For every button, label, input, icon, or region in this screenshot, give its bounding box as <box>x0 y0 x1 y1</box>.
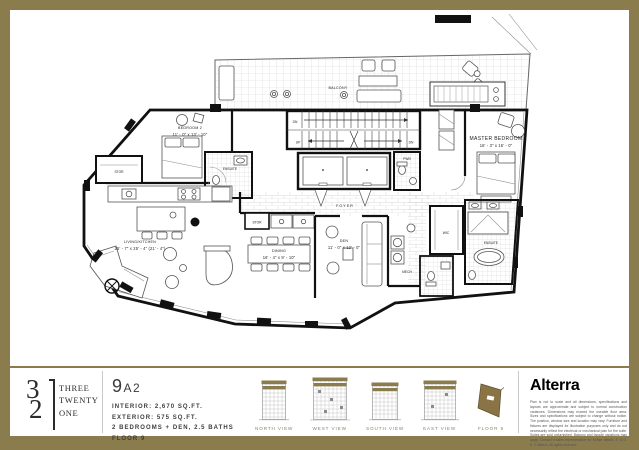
east-elevation-drawing <box>421 377 459 423</box>
legal-disclaimer: Plan is not to scale and all dimensions,… <box>530 400 627 448</box>
logo-word-one: ONE <box>59 407 98 419</box>
den-chair <box>327 262 339 274</box>
floorplate-icon: FLOOR 9 <box>475 377 507 431</box>
elevation-east: EAST VIEW <box>421 377 459 431</box>
stor-center-label: STOR <box>252 221 262 225</box>
separator-left <box>102 371 103 433</box>
footer-divider <box>10 366 629 368</box>
stair-up-label: UP <box>296 141 301 145</box>
bath <box>420 256 453 296</box>
elevation-south: SOUTH VIEW <box>366 379 404 431</box>
powder-room: PWD <box>394 152 420 190</box>
dining-table <box>248 245 310 263</box>
dining-dims: 16' - 4" x 9' - 10" <box>263 255 296 260</box>
wardrobe <box>439 131 454 150</box>
den-sofa <box>362 222 382 286</box>
floor9-view-label: FLOOR 9 <box>478 426 504 431</box>
floor9-plate-drawing <box>475 377 507 423</box>
logo-word-twenty: TWENTY <box>59 394 98 406</box>
stair-dn-upper-label: DN <box>293 120 298 124</box>
balcony-chair <box>362 60 375 71</box>
alterra-logo: Alterra <box>530 377 579 395</box>
west-elevation-drawing <box>310 375 350 423</box>
master-ensuite-label: ENSUITE <box>484 241 499 245</box>
north-elevation-drawing <box>259 377 289 423</box>
armchair <box>166 276 179 289</box>
round-table <box>191 218 200 227</box>
den-chair <box>326 226 338 238</box>
ensuite2-label: ENSUITE <box>223 167 238 171</box>
storage-center: STOR <box>245 213 269 229</box>
kitchen-island <box>137 207 185 231</box>
facade-column-top <box>435 15 471 23</box>
stair-dn-lower-label: DN <box>409 141 414 145</box>
floorplan-sheet: { "colors": {"accent_gold": "#8b7c4e", "… <box>0 0 639 450</box>
den-dims: 11' - 0" x 12' - 0" <box>328 245 361 250</box>
balcony-table <box>359 76 397 86</box>
master-label: MASTER BEDROOM <box>470 136 523 142</box>
master-dims: 16' - 3" x 16' - 0" <box>480 143 513 148</box>
elevation-north: NORTH VIEW <box>255 377 293 431</box>
bedroom2-dims: 11' - 0" x 13' - 10" <box>173 132 208 137</box>
dining-label: DINING <box>272 249 286 253</box>
floor-plan-drawing: BALCONY DN UP DN <box>10 10 629 366</box>
fridge <box>212 187 230 201</box>
logo-digit-1-bar <box>53 379 55 430</box>
bbq-grill <box>430 82 505 106</box>
balcony-chair <box>382 60 395 71</box>
walk-in-closet: WIC <box>430 206 463 254</box>
armchair <box>164 248 177 261</box>
west-view-label: WEST VIEW <box>313 426 347 431</box>
balcony-sofa <box>357 90 401 102</box>
logo-321: 3 2 THREE TWENTY ONE <box>26 378 110 436</box>
living-label: LIVING/KITCHEN <box>124 240 156 244</box>
elevation-views: NORTH VIEW WEST VIEW <box>255 375 507 431</box>
unit-info: 9A2 INTERIOR: 2,670 SQ.FT. EXTERIOR: 575… <box>112 376 234 444</box>
logo-word-three: THREE <box>59 382 98 394</box>
elevation-west: WEST VIEW <box>310 375 350 431</box>
stor-left-label: STOR <box>114 170 124 174</box>
bedroom2-chair <box>177 115 188 126</box>
balcony: BALCONY <box>215 54 530 110</box>
south-elevation-drawing <box>369 379 401 423</box>
floor-plan-area: BALCONY DN UP DN <box>10 10 629 366</box>
unit-exterior: EXTERIOR: 575 SQ.FT. <box>112 413 234 424</box>
wardrobe <box>439 110 454 129</box>
east-view-label: EAST VIEW <box>423 426 456 431</box>
sheet-content: BALCONY DN UP DN <box>10 10 629 436</box>
footer: 3 2 THREE TWENTY ONE 9A2 INTERIOR: 2,670… <box>10 369 629 436</box>
south-view-label: SOUTH VIEW <box>366 426 404 431</box>
storage-left: STOR <box>96 156 142 183</box>
balcony-label: BALCONY <box>328 86 347 90</box>
mech-label: MECH <box>402 270 412 274</box>
unit-floor: FLOOR 9 <box>112 434 234 445</box>
unit-rooms: 2 BEDROOMS + DEN, 2.5 BATHS <box>112 423 234 434</box>
bedroom2-label: BEDROOM 2 <box>178 126 202 130</box>
foyer-label: FOYER <box>336 204 354 208</box>
north-view-label: NORTH VIEW <box>255 426 293 431</box>
unit-name: 9A2 <box>112 376 234 397</box>
separator-right <box>518 371 519 433</box>
master-ensuite: ENSUITE <box>465 200 518 284</box>
wic-label: WIC <box>443 231 450 235</box>
logo-digit-2: 2 <box>29 396 43 423</box>
living-dims: 25' - 7" x 25' - 4" (21' - 4") <box>115 246 166 251</box>
pwd-label: PWD <box>403 157 411 161</box>
logo-wordmark: THREE TWENTY ONE <box>59 382 98 419</box>
balcony-lounge-chair <box>219 66 234 100</box>
den-label: DEN <box>340 239 349 243</box>
unit-interior: INTERIOR: 2,670 SQ.FT. <box>112 402 234 413</box>
